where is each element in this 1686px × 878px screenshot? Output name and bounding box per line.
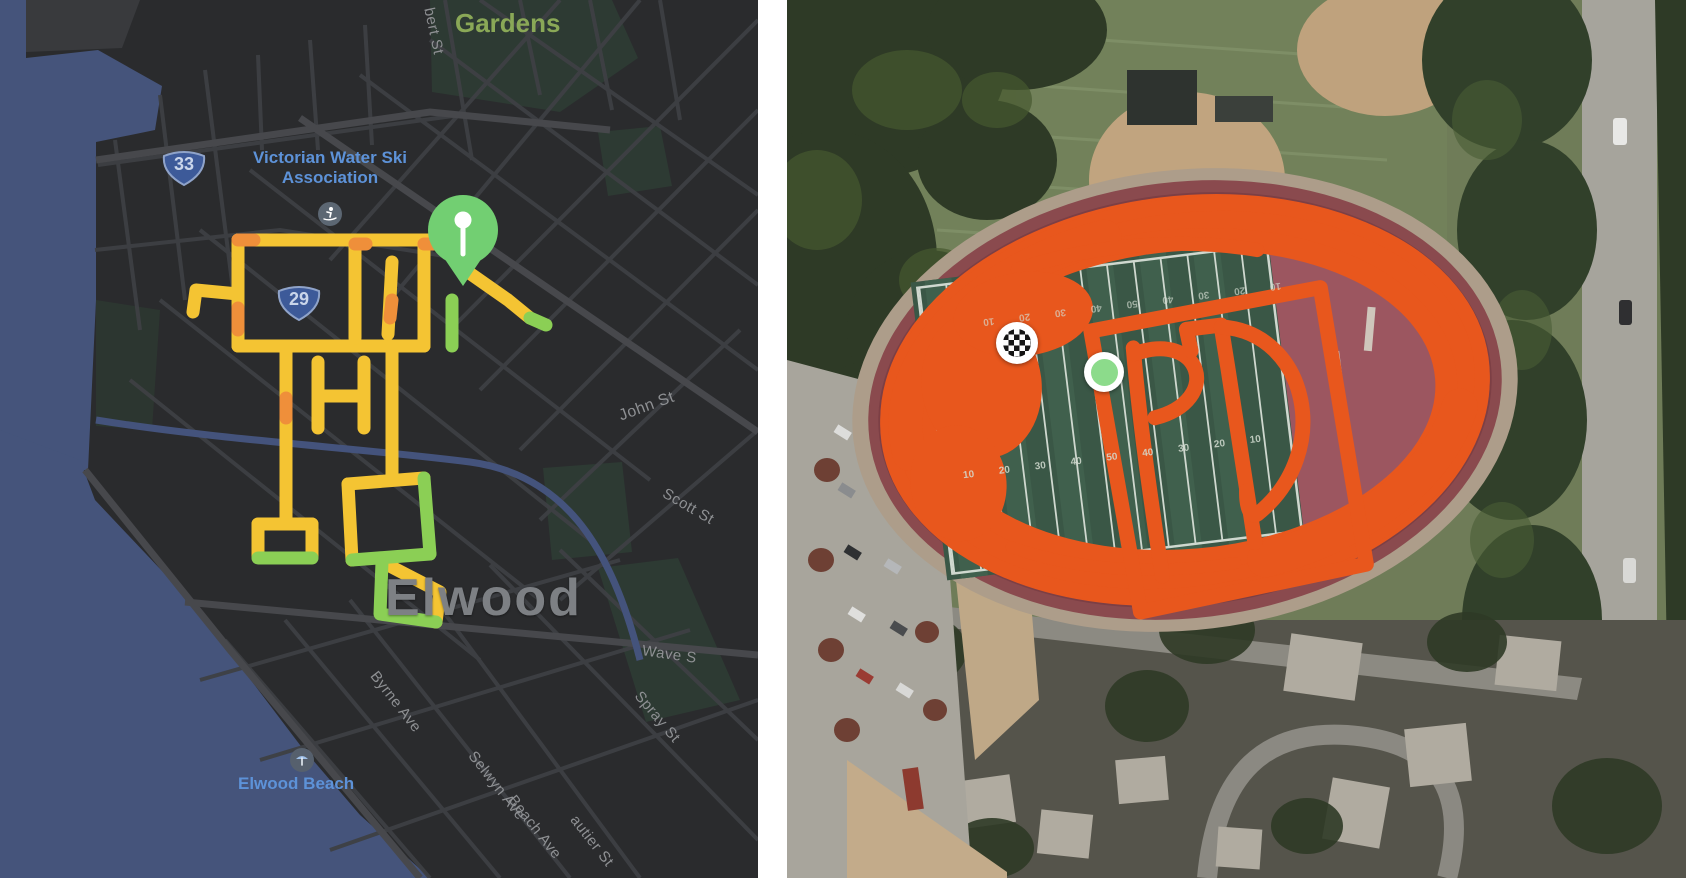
- finish-checkered-marker: [996, 322, 1038, 364]
- left-map-panel[interactable]: Gardens bert St 33 29 Victorian Water Sk…: [0, 0, 758, 878]
- beach-umbrella-icon: [290, 748, 314, 772]
- start-pin-marker: [428, 195, 498, 286]
- screenshot-stage: Gardens bert St 33 29 Victorian Water Sk…: [0, 0, 1686, 878]
- start-dot-icon: [1091, 359, 1118, 386]
- left-map-canvas: [0, 0, 758, 878]
- right-map-panel[interactable]: 102030405040302010 102030405040302010: [787, 0, 1686, 878]
- water-ski-icon: [318, 202, 342, 226]
- panel-divider: [758, 0, 787, 878]
- start-dot-marker: [1084, 352, 1124, 392]
- route-shield-33: 33: [161, 147, 207, 187]
- right-map-canvas: [787, 0, 1686, 878]
- checkered-flag-icon: [1003, 329, 1031, 357]
- route-shield-29: 29: [276, 282, 322, 322]
